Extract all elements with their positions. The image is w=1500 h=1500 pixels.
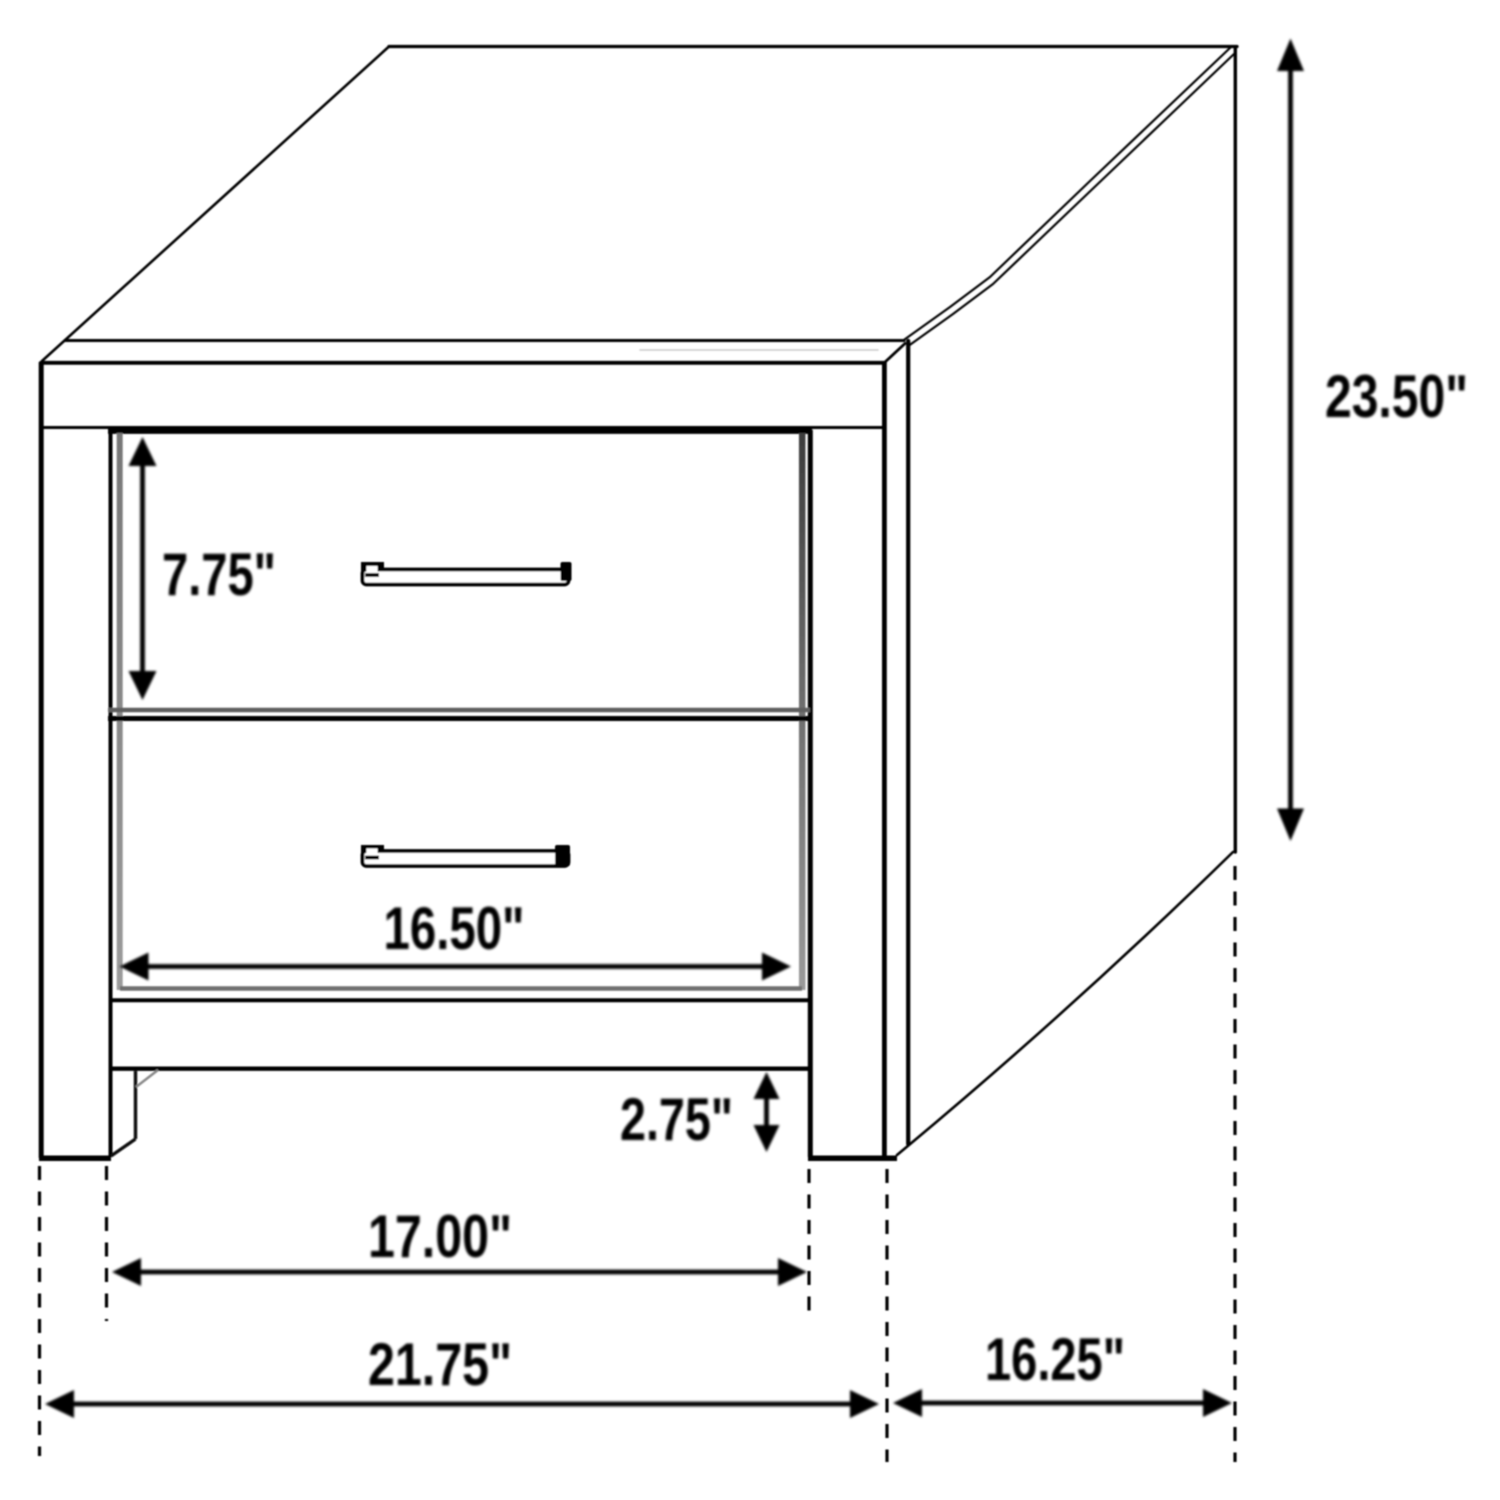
svg-text:2.75": 2.75" [620,1086,733,1153]
svg-text:17.00": 17.00" [368,1203,512,1270]
svg-text:23.50": 23.50" [1325,363,1468,430]
svg-text:21.75": 21.75" [368,1331,512,1398]
svg-text:16.25": 16.25" [985,1326,1125,1393]
svg-text:16.50": 16.50" [384,895,525,962]
svg-text:7.75": 7.75" [162,541,276,608]
